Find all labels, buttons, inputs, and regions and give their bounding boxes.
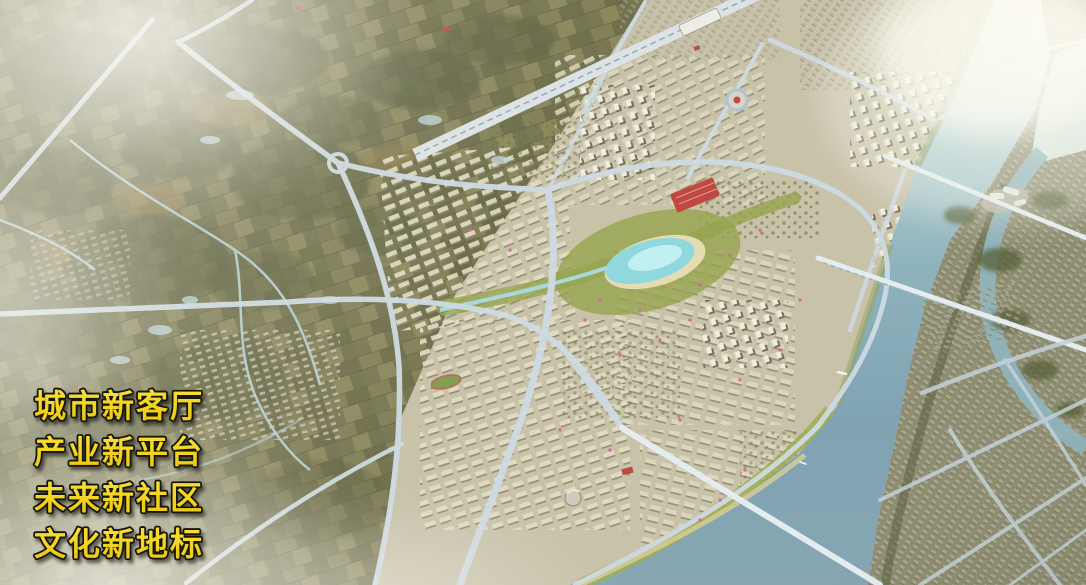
slogan-line-4: 文化新地标 <box>34 525 204 563</box>
slogan-line-3: 未来新社区 <box>34 479 204 517</box>
city-render: 城市新客厅 产业新平台 未来新社区 文化新地标 <box>0 0 1086 585</box>
slogan-overlay: 城市新客厅 产业新平台 未来新社区 文化新地标 <box>0 0 1086 585</box>
slogan-line-2: 产业新平台 <box>34 433 204 471</box>
slogan-line-1: 城市新客厅 <box>34 387 204 425</box>
